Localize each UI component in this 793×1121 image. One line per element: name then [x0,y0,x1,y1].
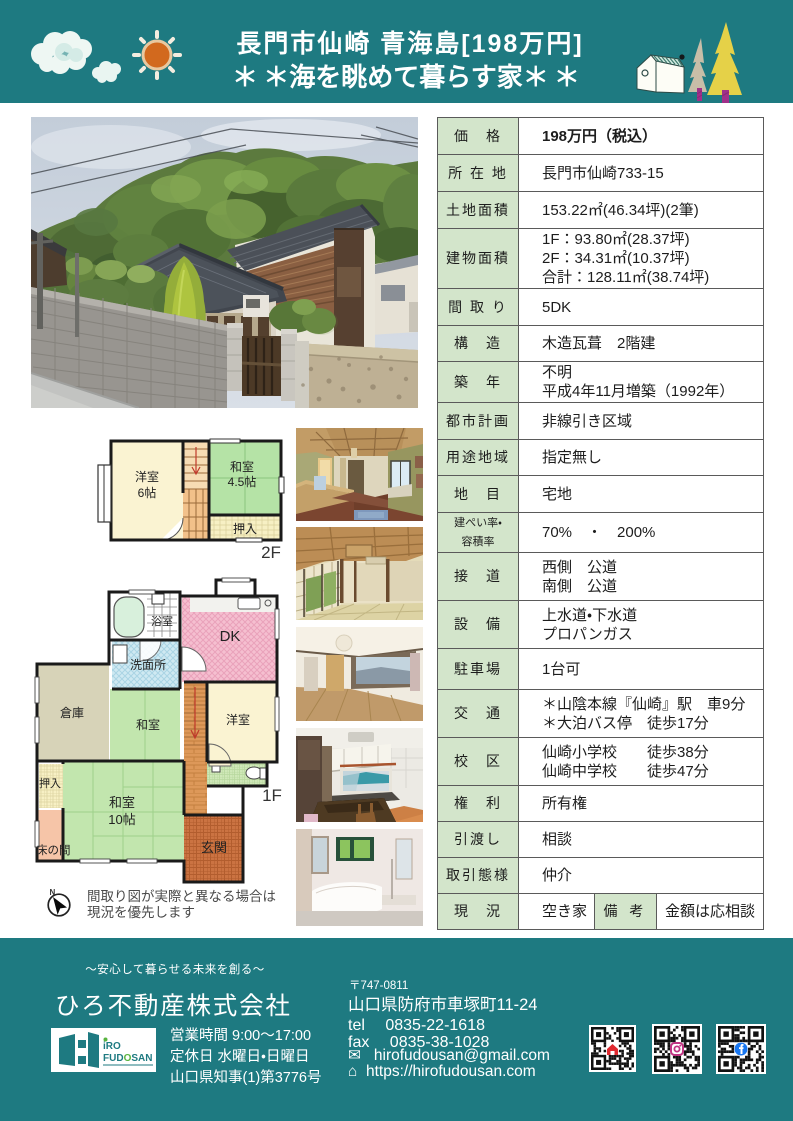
svg-text:1F: 1F [262,786,282,805]
svg-text:6帖: 6帖 [138,485,157,500]
svg-text:FUDOSAN: FUDOSAN [103,1053,152,1064]
svg-text:押入: 押入 [233,522,257,536]
svg-text:N: N [50,888,56,897]
svg-text:DK: DK [220,628,241,645]
svg-text:10帖: 10帖 [108,812,135,827]
svg-text:洋室: 洋室 [226,712,250,727]
svg-text:2F: 2F [261,543,281,562]
svg-text:iRO: iRO [103,1041,121,1052]
svg-text:押入: 押入 [39,776,61,790]
svg-text:和室: 和室 [136,718,160,732]
svg-text:和室: 和室 [230,460,254,474]
svg-text:4.5帖: 4.5帖 [228,474,257,489]
svg-text:床の間: 床の間 [36,844,71,857]
svg-text:玄関: 玄関 [201,840,227,855]
svg-text:倉庫: 倉庫 [60,706,84,720]
svg-text:浴室: 浴室 [151,615,173,628]
svg-text:和室: 和室 [109,795,135,810]
svg-text:洋室: 洋室 [135,469,159,484]
svg-text:洗面所: 洗面所 [130,658,166,672]
